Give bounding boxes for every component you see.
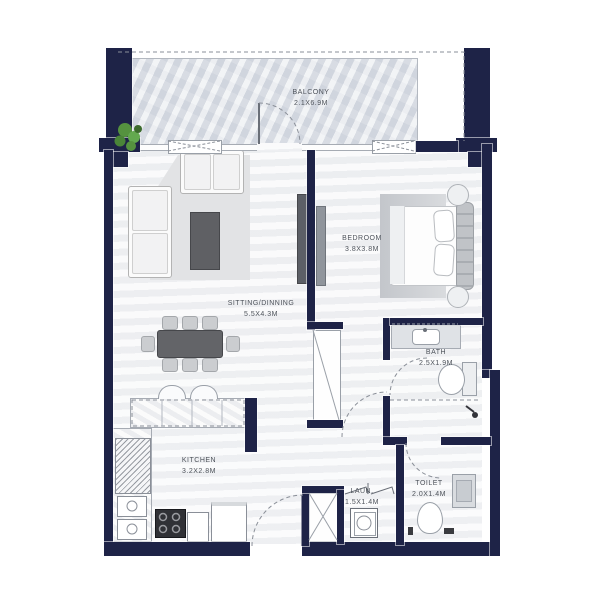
room-label-kitchen: KITCHEN 3.2X2.8M [182, 455, 216, 477]
wc-icon [417, 502, 443, 534]
dining-chair-icon [162, 316, 178, 330]
dining-chair-icon [226, 336, 240, 352]
room-label-bath: BATH 2.5X1.9M [419, 347, 453, 369]
room-label-laundry: LAUN. 1.5X1.4M [345, 486, 379, 508]
room-dims: 3.2X2.8M [182, 466, 216, 477]
kitchen-counter-top [130, 398, 246, 428]
room-dims: 2.1X6.9M [293, 98, 330, 109]
room-dims: 3.8X3.8M [342, 244, 382, 255]
wall-right-upper [482, 144, 492, 376]
dishwasher-icon [211, 502, 247, 542]
sliding-door-panel-icon [316, 206, 326, 286]
wall-kitchen-divider [245, 398, 257, 452]
wall-bath-toilet-right [441, 437, 491, 445]
dining-chair-icon [141, 336, 155, 352]
sofa-top-icon [180, 150, 244, 194]
dining-chair-icon [202, 358, 218, 372]
sink-icon [412, 329, 440, 345]
sofa-cushion [213, 154, 240, 190]
toilet-accessory [444, 528, 454, 534]
sink-basin [456, 480, 472, 502]
coffee-table-icon [190, 212, 220, 270]
wall-closet-laundry [337, 490, 344, 544]
sofa-cushion [132, 233, 168, 274]
wall-bedroom-top [416, 141, 458, 152]
wall-right-lower [490, 370, 500, 556]
wall-closet-top [307, 322, 343, 329]
stove-icon [155, 509, 186, 538]
washer-inner [354, 512, 376, 536]
wall-left [104, 150, 113, 546]
room-label-balcony: BALCONY 2.1X6.9M [293, 87, 330, 109]
dining-chair-icon [182, 358, 198, 372]
balcony-door-opening [257, 143, 302, 151]
room-name: BEDROOM [342, 235, 382, 242]
toilet-accessory [408, 527, 413, 535]
dining-chair-icon [202, 316, 218, 330]
pillar-top-left [106, 48, 132, 140]
room-name: LAUN. [350, 488, 373, 495]
room-dims: 5.5X4.3M [228, 309, 295, 320]
wall-bedroom-bath [390, 318, 483, 325]
room-name: KITCHEN [182, 457, 216, 464]
wall-bath-left-upper [383, 318, 390, 360]
dining-chair-icon [182, 316, 198, 330]
kitchen-sink-unit [117, 519, 147, 540]
wall-entry-riser [302, 488, 309, 546]
sofa-left-icon [128, 186, 172, 278]
fridge-icon [115, 438, 151, 494]
sofa-cushion [132, 190, 168, 231]
room-name: TOILET [415, 480, 442, 487]
dining-chair-icon [162, 358, 178, 372]
oven-icon [187, 512, 209, 542]
room-dims: 2.5X1.9M [419, 358, 453, 369]
pillar-top-right [464, 48, 490, 140]
headboard-icon [456, 202, 474, 290]
pillar-stub [112, 152, 128, 167]
room-label-bedroom: BEDROOM 3.8X3.8M [342, 233, 382, 255]
nightstand-icon [447, 286, 469, 308]
room-name: BATH [426, 349, 446, 356]
room-dims: 1.5X1.4M [345, 497, 379, 508]
wall-divider-living-bedroom [307, 150, 315, 330]
pillow-icon [433, 243, 455, 276]
nightstand-icon [447, 184, 469, 206]
wall-bath-toilet-left [383, 437, 407, 445]
room-label-toilet: TOILET 2.0X1.4M [412, 478, 446, 500]
entry-closet-icon [309, 493, 339, 542]
wall-bottom-left [104, 542, 250, 556]
duvet-fold [390, 206, 405, 284]
floor-plan: BALCONY 2.1X6.9M SITTING/DINNING 5.5X4.3… [0, 0, 600, 600]
room-dims: 2.0X1.4M [412, 489, 446, 500]
dining-table-icon [157, 330, 223, 358]
pillow-icon [433, 209, 455, 242]
room-label-sitting-dining: SITTING/DINNING 5.5X4.3M [228, 298, 295, 320]
room-name: SITTING/DINNING [228, 300, 295, 307]
wall-closet-bottom [307, 420, 343, 428]
room-name: BALCONY [293, 89, 330, 96]
balcony-floor [110, 58, 418, 146]
window-icon [168, 140, 222, 154]
window-icon [372, 140, 416, 154]
sofa-cushion [184, 154, 211, 190]
wall-toilet-left [396, 445, 404, 545]
hall-closet-icon [313, 330, 341, 422]
kitchen-sink-unit [117, 496, 147, 517]
